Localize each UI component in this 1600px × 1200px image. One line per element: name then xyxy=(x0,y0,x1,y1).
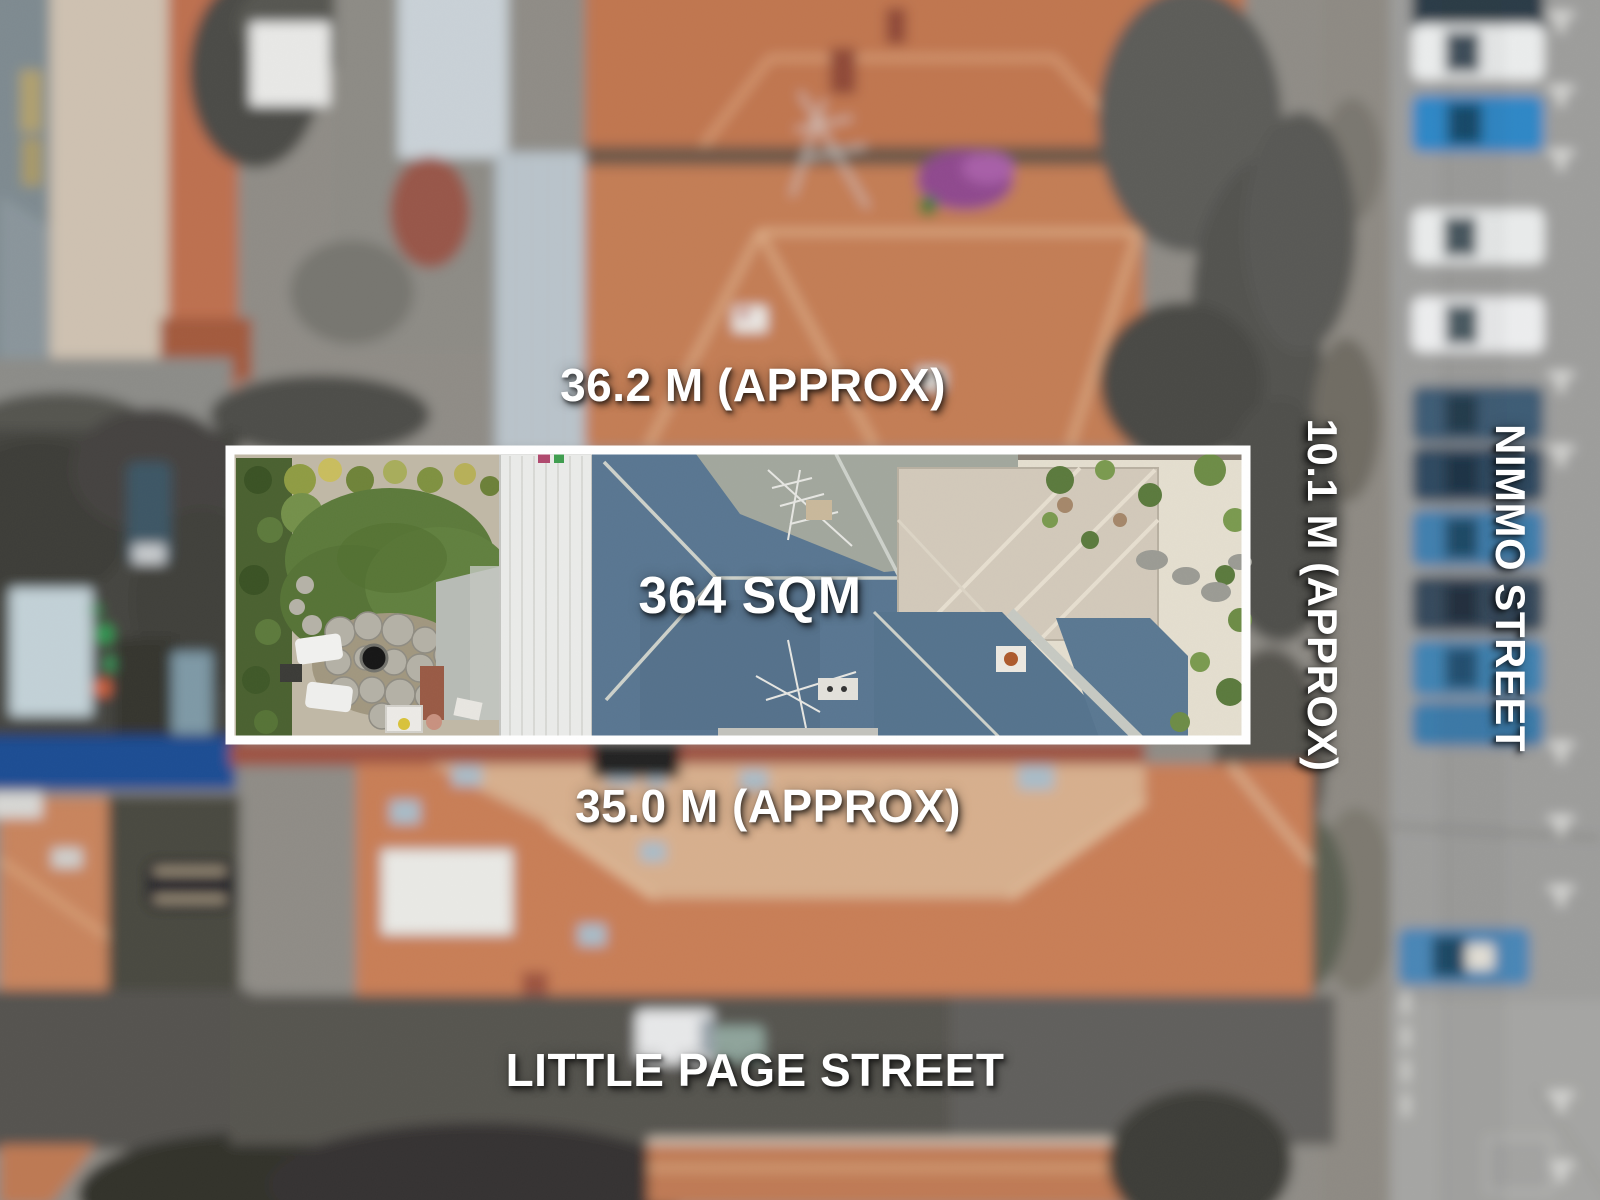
dimension-top-label: 36.2 M (APPROX) xyxy=(560,358,946,412)
aerial-property-photo: 36.2 M (APPROX) 364 SQM 10.1 M (APPROX) … xyxy=(0,0,1600,1200)
street-label-nimmo: NIMMO STREET xyxy=(1486,424,1534,752)
dimension-right-label: 10.1 M (APPROX) xyxy=(1298,419,1346,772)
dimension-bottom-label: 35.0 M (APPROX) xyxy=(575,779,961,833)
street-label-little-page: LITTLE PAGE STREET xyxy=(506,1043,1005,1097)
land-area-label: 364 SQM xyxy=(638,566,861,626)
